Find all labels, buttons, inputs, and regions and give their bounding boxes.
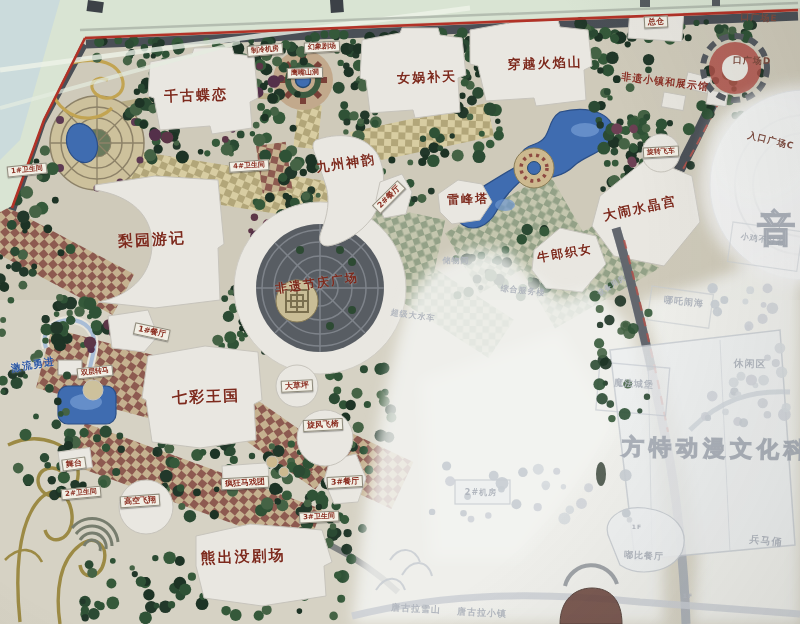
building-maxituan: [222, 463, 269, 489]
building-qicai-wangguo: [142, 346, 262, 448]
park-map-photo: 千古蝶恋女娲补天穿越火焰山九州神韵雷峰塔大闹水晶宫牛郎织女梨园游记非遗节庆广场七…: [0, 0, 800, 624]
lawn-dacaoping: [276, 365, 318, 407]
building-xiongchumo: [196, 524, 332, 606]
festival-plaza: [234, 202, 406, 374]
ride-xuanzhuan-feiche: [642, 134, 680, 172]
building-qiangu-dielian: [148, 47, 258, 134]
ride-gaokong-feixiang: [119, 480, 173, 534]
building-corridor2: [661, 92, 685, 111]
carousel-small: [83, 380, 103, 400]
kids-ride-a: [266, 456, 278, 468]
ride-xuanfeng-feiyi: [297, 410, 353, 466]
kids-ride-b: [279, 467, 289, 477]
park-map-artwork: [0, 0, 800, 624]
building-nuwa-butian: [360, 28, 466, 118]
building-huoyanshan: [470, 20, 592, 106]
ring-fountain: [514, 148, 554, 188]
building-wutai: [58, 448, 92, 472]
